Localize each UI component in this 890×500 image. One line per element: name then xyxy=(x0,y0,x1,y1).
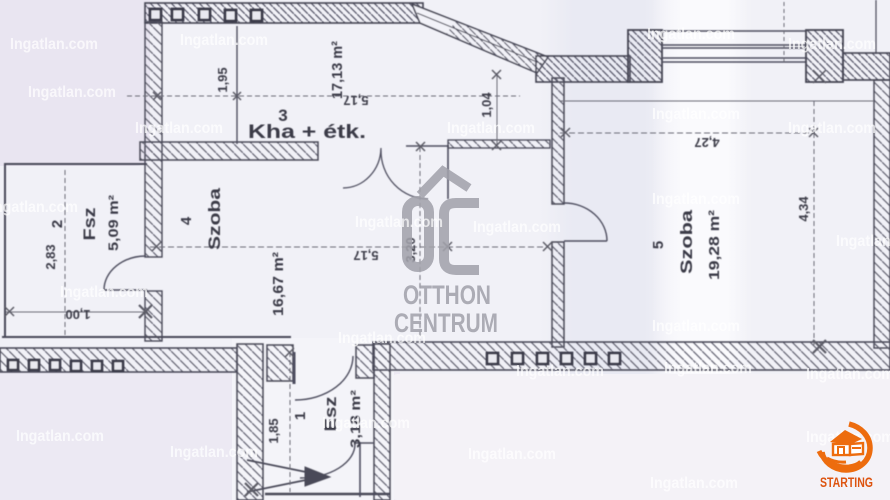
svg-text:Kha + étk.: Kha + étk. xyxy=(248,122,366,143)
svg-text:Szoba: Szoba xyxy=(677,209,696,274)
svg-text:Ingatlan.com: Ingatlan.com xyxy=(447,120,535,137)
svg-text:Ingatlan.com: Ingatlan.com xyxy=(28,84,116,101)
svg-text:4,34: 4,34 xyxy=(796,196,811,222)
svg-text:Fsz: Fsz xyxy=(80,208,99,241)
svg-text:5,17: 5,17 xyxy=(343,93,368,108)
svg-text:16,67 m²: 16,67 m² xyxy=(270,252,287,316)
svg-text:Ingatlan.com: Ingatlan.com xyxy=(836,233,890,250)
svg-text:5: 5 xyxy=(650,241,667,249)
svg-text:2,83: 2,83 xyxy=(43,244,58,269)
svg-text:Ingatlan.com: Ingatlan.com xyxy=(664,360,752,377)
svg-text:1,85: 1,85 xyxy=(266,418,281,443)
svg-text:4,27: 4,27 xyxy=(694,135,719,150)
svg-text:2: 2 xyxy=(49,220,66,228)
svg-text:Ingatlan.com: Ingatlan.com xyxy=(788,36,876,53)
svg-text:Ingatlan.com: Ingatlan.com xyxy=(355,214,443,231)
svg-text:Ingatlan.com: Ingatlan.com xyxy=(652,191,740,208)
svg-text:19,28 m²: 19,28 m² xyxy=(706,210,723,280)
svg-text:Ingatlan.com: Ingatlan.com xyxy=(652,318,740,335)
svg-text:5,09 m²: 5,09 m² xyxy=(105,195,121,251)
svg-text:Ingatlan.com: Ingatlan.com xyxy=(806,366,890,383)
svg-text:Ingatlan.com: Ingatlan.com xyxy=(650,475,738,492)
svg-text:Ingatlan.com: Ingatlan.com xyxy=(0,199,78,216)
svg-text:1: 1 xyxy=(292,412,309,420)
svg-text:Szoba: Szoba xyxy=(205,187,224,250)
svg-text:Ingatlan.com: Ingatlan.com xyxy=(338,330,426,347)
svg-text:Ingatlan.com: Ingatlan.com xyxy=(788,120,876,137)
svg-text:Ingatlan.com: Ingatlan.com xyxy=(322,415,410,432)
svg-text:Ingatlan.com: Ingatlan.com xyxy=(170,444,258,461)
svg-text:OTTHON: OTTHON xyxy=(403,280,491,310)
svg-text:4: 4 xyxy=(178,216,195,225)
svg-text:Ingatlan.com: Ingatlan.com xyxy=(16,428,104,445)
svg-text:Ingatlan.com: Ingatlan.com xyxy=(473,219,561,236)
svg-text:Ingatlan.com: Ingatlan.com xyxy=(180,32,268,49)
svg-text:Ingatlan.com: Ingatlan.com xyxy=(652,106,740,123)
svg-text:5,17: 5,17 xyxy=(353,248,378,263)
svg-text:Ingatlan.com: Ingatlan.com xyxy=(10,36,98,53)
svg-text:17,13 m²: 17,13 m² xyxy=(329,41,346,99)
svg-text:1,95: 1,95 xyxy=(215,67,230,92)
svg-text:1,04: 1,04 xyxy=(479,92,494,118)
svg-text:Ingatlan.com: Ingatlan.com xyxy=(135,120,223,137)
svg-text:1,00: 1,00 xyxy=(65,307,90,322)
svg-text:Ingatlan.com: Ingatlan.com xyxy=(647,26,735,43)
svg-text:Ingatlan.com: Ingatlan.com xyxy=(468,446,556,463)
svg-text:STARTING: STARTING xyxy=(820,475,873,490)
svg-text:Ingatlan.com: Ingatlan.com xyxy=(60,284,148,301)
svg-text:Ingatlan.com: Ingatlan.com xyxy=(516,363,604,380)
